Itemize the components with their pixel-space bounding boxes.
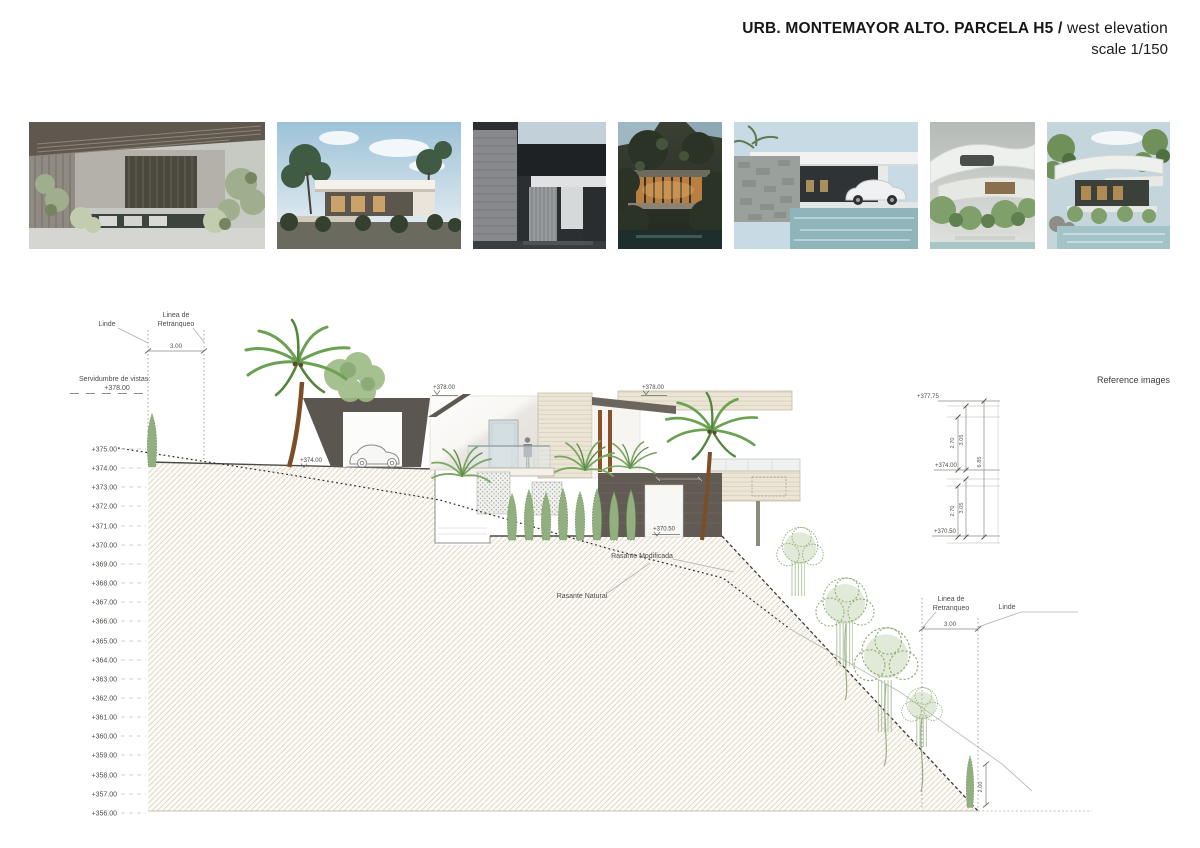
level-label: +358.00 bbox=[92, 773, 118, 780]
lower-clear-dim: 2.70 bbox=[950, 506, 956, 517]
servidumbre-label: Servidumbre de vistas: bbox=[79, 376, 150, 383]
level-label: +371.00 bbox=[92, 524, 118, 531]
level-label: +370.00 bbox=[92, 543, 118, 550]
level-label: +363.00 bbox=[92, 677, 118, 684]
servidumbre-level: +378.00 bbox=[104, 385, 130, 392]
level-label: +369.00 bbox=[92, 562, 118, 569]
roof-level-left: +378.00 bbox=[433, 385, 456, 391]
overall-height-dim: 6.85 bbox=[977, 457, 983, 468]
balcony-glass-rail bbox=[468, 446, 550, 468]
elevation-scale: +375.00 +374.00 +373.00 +372.00 +371.00 … bbox=[92, 447, 147, 818]
level-label: +368.00 bbox=[92, 581, 118, 588]
sheet: URB. MONTEMAYOR ALTO. PARCELA H5 / west … bbox=[0, 0, 1200, 848]
rasante-modificada-label: Rasante Modificada bbox=[611, 553, 673, 560]
right-dimension-stack: +377.75 +374.00 +370.50 2.70 3.05 2.70 3… bbox=[917, 394, 1000, 543]
upper-clear-dim: 2.70 bbox=[950, 438, 956, 449]
level-label: +364.00 bbox=[92, 658, 118, 665]
level-label: +362.00 bbox=[92, 696, 118, 703]
palm-trunk bbox=[289, 382, 302, 467]
level-label: +374.00 bbox=[92, 466, 118, 473]
garage-level-label: +374.00 bbox=[300, 458, 323, 464]
timber-post bbox=[608, 410, 612, 472]
level-label: +367.00 bbox=[92, 600, 118, 607]
mid-level-label: +374.00 bbox=[935, 463, 958, 469]
linde-label-right: Linde bbox=[998, 604, 1015, 611]
roof-level-right: +378.00 bbox=[642, 385, 665, 391]
retranqueo-label-left-1: Linea de bbox=[163, 312, 190, 319]
elevation-drawing: +375.00 +374.00 +373.00 +372.00 +371.00 … bbox=[0, 0, 1200, 848]
tree-canopy bbox=[324, 352, 385, 402]
gabion-wall bbox=[477, 472, 510, 514]
level-label: +365.00 bbox=[92, 639, 118, 646]
boundary-hedge bbox=[966, 756, 973, 807]
upper-total-dim: 3.05 bbox=[959, 435, 965, 446]
level-label: +360.00 bbox=[92, 734, 118, 741]
setback-dim-left: 3.00 bbox=[170, 343, 183, 350]
level-label: +366.00 bbox=[92, 619, 118, 626]
top-level-label: +377.75 bbox=[917, 394, 940, 400]
linde-label-left: Linde bbox=[98, 321, 115, 328]
retranqueo-label-left-2: Retranqueo bbox=[158, 321, 195, 328]
bottom-level-label: +370.50 bbox=[934, 529, 957, 535]
level-label: +361.00 bbox=[92, 715, 118, 722]
level-label: +372.00 bbox=[92, 504, 118, 511]
level-label: +373.00 bbox=[92, 485, 118, 492]
retranqueo-label-right-2: Retranqueo bbox=[933, 605, 970, 612]
retranqueo-label-right-1: Linea de bbox=[938, 596, 965, 603]
fence-height-dim: 2.00 bbox=[978, 782, 984, 793]
rasante-natural-label: Rasante Natural bbox=[557, 593, 608, 600]
level-label: +356.00 bbox=[92, 811, 118, 818]
deck-post bbox=[756, 501, 760, 546]
cypress-linde bbox=[147, 414, 156, 467]
level-label: +359.00 bbox=[92, 753, 118, 760]
lower-level-label: +370.50 bbox=[653, 527, 676, 533]
level-label: +375.00 bbox=[92, 447, 118, 454]
lower-total-dim: 3.05 bbox=[959, 503, 965, 514]
level-label: +357.00 bbox=[92, 792, 118, 799]
setback-dim-right: 3.00 bbox=[944, 621, 957, 628]
